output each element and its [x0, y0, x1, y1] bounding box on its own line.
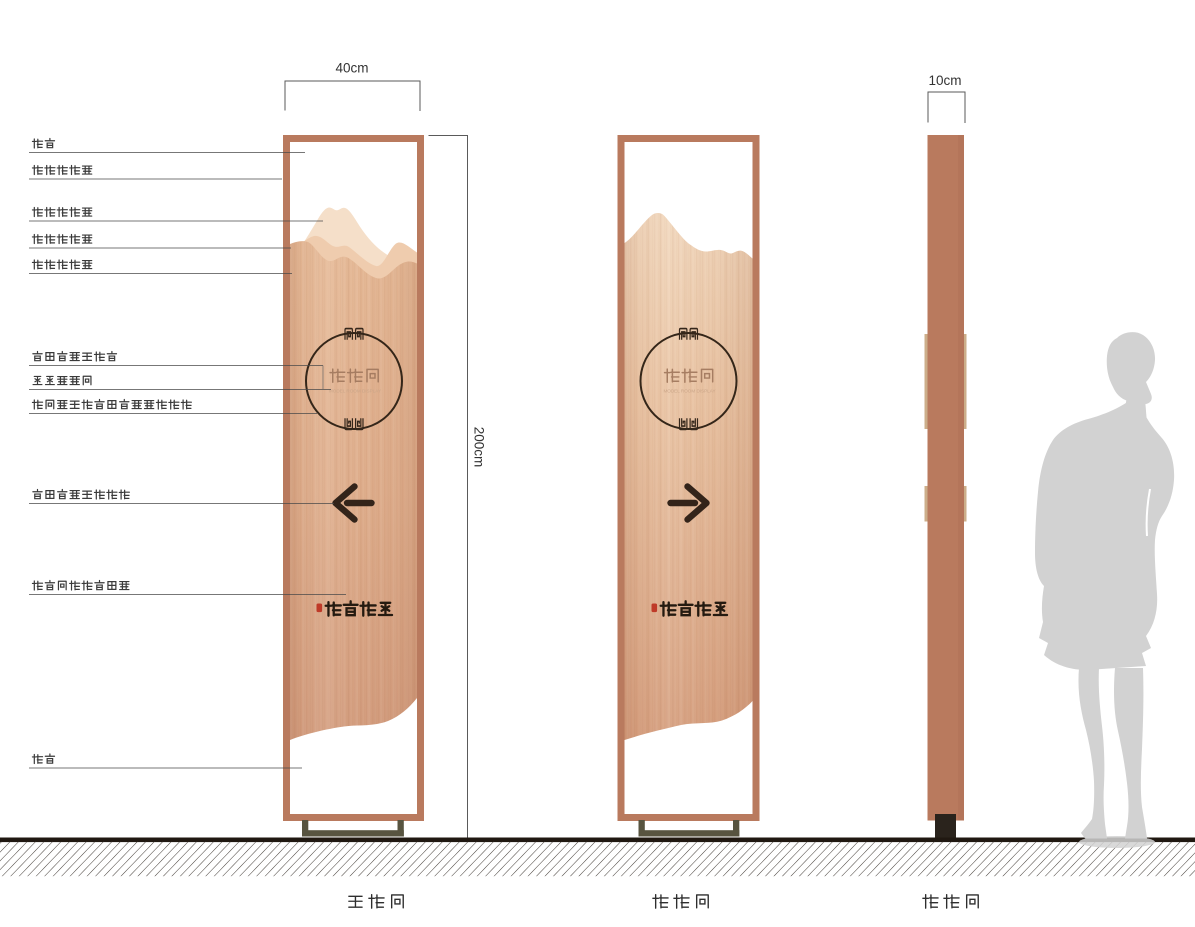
svg-text:MODEL ROOM DISPLAY: MODEL ROOM DISPLAY	[329, 389, 381, 394]
svg-text:200cm: 200cm	[472, 427, 487, 468]
svg-text:MODEL ROOM DISPLAY: MODEL ROOM DISPLAY	[663, 389, 715, 394]
svg-text:40cm: 40cm	[335, 61, 368, 76]
svg-text:10cm: 10cm	[928, 73, 961, 88]
